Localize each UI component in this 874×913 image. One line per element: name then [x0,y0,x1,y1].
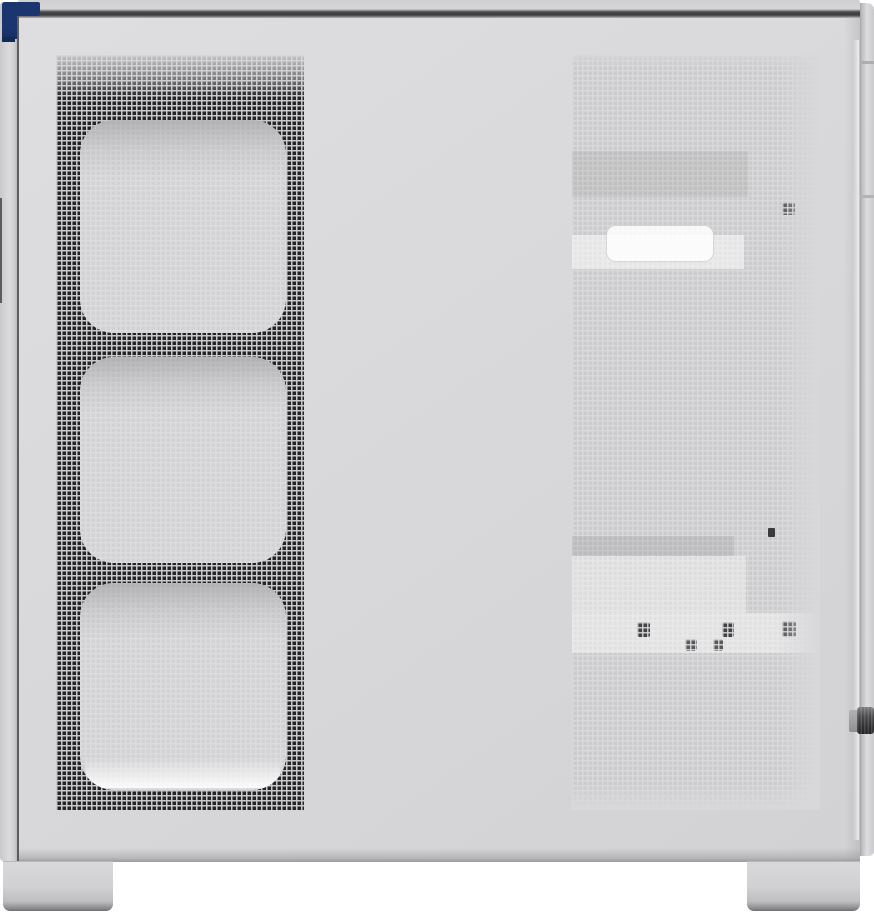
vent-fade-right [776,55,820,810]
fan-cutout-2 [80,357,286,563]
screw-head-mid [768,528,775,537]
side-mesh-vent [572,55,820,810]
front-panel-edge [0,2,19,861]
front-panel-accent-shadow [2,37,15,42]
fan-cutout-1 [80,120,286,333]
thumbscrew-knob [857,707,874,734]
front-mesh-strip [56,55,304,810]
psu-screw-2 [722,622,734,637]
vent-highlight-band-lower [572,556,746,613]
rear-panel-notch-1 [860,61,874,64]
case-foot-front [3,861,113,911]
front-panel-accent-vertical [2,2,17,39]
psu-screw-5 [713,639,723,651]
case-foot-rear [747,861,860,911]
fan-cutout-3 [80,583,286,790]
psu-screw-1 [637,622,650,637]
vent-shade-band-lower [572,536,734,556]
case-top-edge [18,0,860,18]
pc-case-photo [0,0,874,913]
side-panel-bottom-shade [19,848,860,862]
vent-fade-bottom [572,784,820,810]
front-edge-shadow [0,198,2,303]
rear-panel-notch-2 [860,195,874,198]
vent-shade-band-upper [572,151,748,197]
psu-screw-4 [685,639,697,651]
io-shroud-plate [606,225,714,262]
mesh-top-fade [56,55,304,97]
